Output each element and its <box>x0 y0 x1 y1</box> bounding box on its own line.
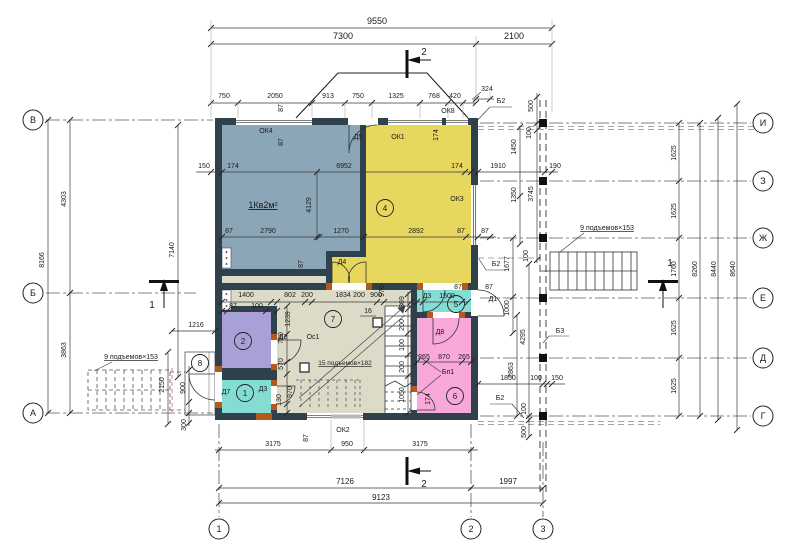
drawing-label: 200 <box>399 319 406 331</box>
drawing-label: 174 <box>425 393 432 405</box>
drawing-label: 1000 <box>504 300 511 316</box>
drawing-label: 6952 <box>336 163 352 170</box>
axis-bubble-Е: Е <box>753 288 773 308</box>
drawing-label: 420 <box>449 93 461 100</box>
drawing-label: 8 <box>198 359 203 368</box>
drawing-label: 4303 <box>61 191 68 207</box>
drawing-label: 1625 <box>671 203 678 219</box>
drawing-label: 87 <box>457 228 465 235</box>
drawing-label: 1050 <box>399 387 406 403</box>
drawing-label: Д3 <box>423 293 432 300</box>
drawing-label: 3 <box>540 524 545 534</box>
drawing-label: 2150 <box>159 377 166 393</box>
drawing-label: ОК2 <box>336 427 350 434</box>
drawing-label: 3175 <box>412 441 428 448</box>
drawing-label: 150 <box>551 375 563 382</box>
drawing-label: 265 <box>418 354 430 361</box>
drawing-label: 7 <box>331 315 336 324</box>
drawing-label: 1450 <box>511 139 518 155</box>
drawing-label: 100 <box>521 403 528 415</box>
axis-bubble-Д: Д <box>753 348 773 368</box>
drawing-label: 2892 <box>408 228 424 235</box>
drawing-label: 150 <box>198 163 210 170</box>
drawing-label: 1Кв2м² <box>248 200 277 210</box>
drawing-label: 100 <box>399 339 406 351</box>
stairs-exterior-right <box>541 252 637 290</box>
drawing-label: Д1 <box>489 296 498 303</box>
drawing-label: 4295 <box>520 329 527 345</box>
drawing-label: Б2 <box>492 261 501 268</box>
drawing-label: 1239 <box>285 311 292 327</box>
drawing-label: 9550 <box>367 16 387 26</box>
drawing-label: 500 <box>528 100 535 112</box>
drawing-label: Б <box>30 288 36 298</box>
axis-bubble-1: 1 <box>209 519 229 539</box>
drawing-label: ОК3 <box>450 196 464 203</box>
drawing-label: Бп1 <box>442 369 454 376</box>
drawing-label: 1325 <box>388 93 404 100</box>
drawing-label: 768 <box>428 93 440 100</box>
drawing-label: Д2 <box>279 334 288 341</box>
drawing-label: 130 <box>276 394 283 406</box>
drawing-label: Б3 <box>556 328 565 335</box>
drawing-label: 324 <box>481 86 493 93</box>
floor-plan-canvas: 9550730021007502050913750132576842032422… <box>0 0 800 556</box>
drawing-label: 1760 <box>671 261 678 277</box>
drawing-label: 2790 <box>260 228 276 235</box>
drawing-label: 870 <box>438 354 450 361</box>
drawing-label: 913 <box>322 93 334 100</box>
drawing-label: Д8 <box>436 329 445 336</box>
drawing-label: 750 <box>352 93 364 100</box>
axis-bubble-Б: Б <box>23 283 43 303</box>
drawing-label: 1625 <box>671 320 678 336</box>
drawing-label: 87 <box>229 303 237 310</box>
drawing-label: Д5 <box>354 134 363 141</box>
drawing-label: 87 <box>481 228 489 235</box>
drawing-label: 15 подъемов×182 <box>318 360 372 367</box>
drawing-label: 100 <box>530 375 542 382</box>
drawing-label: 8260 <box>692 261 699 277</box>
drawing-label: 7126 <box>336 477 354 486</box>
drawing-label: 1400 <box>238 292 254 299</box>
axis-bubble-И: И <box>753 113 773 133</box>
drawing-label: 369 <box>399 296 406 308</box>
axis-bubble-Ж: Ж <box>753 228 773 248</box>
drawing-label: ОК1 <box>391 134 405 141</box>
drawing-label: 87 <box>298 260 305 268</box>
drawing-label: 2 <box>421 479 427 490</box>
drawing-label: Е <box>760 293 766 303</box>
drawing-label: Б2 <box>497 98 506 105</box>
drawing-label: 100 <box>526 127 533 139</box>
drawing-label: 4 <box>383 204 388 213</box>
drawing-label: 2 <box>241 337 246 346</box>
drawing-label: 7140 <box>169 242 176 258</box>
drawing-label: 4129 <box>306 197 313 213</box>
drawing-label: 265 <box>458 354 470 361</box>
drawing-label: 200 <box>399 361 406 373</box>
drawing-label: 1270 <box>333 228 349 235</box>
axis-bubble-Г: Г <box>753 406 773 426</box>
drawing-label: 100 <box>523 250 530 262</box>
drawing-label: 9 подъемов×153 <box>580 225 634 232</box>
drawing-label: Д7 <box>222 389 231 396</box>
drawing-label: 3863 <box>61 342 68 358</box>
drawing-label: Ж <box>759 233 768 243</box>
room-area-living-blue <box>222 125 360 269</box>
window-sill <box>331 415 361 419</box>
drawing-label: З <box>760 176 765 186</box>
drawing-label: Ос1 <box>307 334 320 341</box>
axis-bubble-2: 2 <box>461 519 481 539</box>
drawing-label: 1625 <box>671 145 678 161</box>
drawing-label: 1910 <box>490 163 506 170</box>
drawing-label: 87 <box>278 104 285 112</box>
drawing-label: 87 <box>225 228 233 235</box>
drawing-label: 87 <box>303 434 310 442</box>
drawing-label: 87 <box>278 138 285 146</box>
drawing-label: Б2 <box>496 395 505 402</box>
drawing-label: Г <box>761 411 766 421</box>
axis-bubble-В: В <box>23 110 43 130</box>
drawing-label: 750 <box>218 93 230 100</box>
drawing-label: 190 <box>549 163 561 170</box>
axis-bubble-3: 3 <box>533 519 553 539</box>
drawing-label: 1216 <box>188 322 204 329</box>
drawing-label: ОК4 <box>259 128 273 135</box>
drawing-label: 8166 <box>39 252 46 268</box>
drawing-label: 100 <box>251 303 263 310</box>
room-area-2-purple <box>222 312 271 368</box>
drawing-label: 970 <box>287 386 294 398</box>
drawing-label: 500 <box>521 426 528 438</box>
drawing-label: 1677 <box>504 256 511 272</box>
stairs-exterior-left <box>88 370 185 410</box>
drawing-label: 8640 <box>730 261 737 277</box>
drawing-label: 1834 <box>335 292 351 299</box>
drawing-label: 802 <box>284 292 296 299</box>
drawing-label: А <box>30 408 36 418</box>
drawing-label: 3745 <box>528 186 535 202</box>
drawing-label: 200 <box>301 292 313 299</box>
drawing-label: 2050 <box>267 93 283 100</box>
drawing-label: 2 <box>468 524 473 534</box>
drawing-label: 300 <box>181 419 188 431</box>
drawing-label: 174 <box>451 163 463 170</box>
drawing-label: 1997 <box>499 477 517 486</box>
drawing-label: 3175 <box>265 441 281 448</box>
drawing-label: 1625 <box>671 378 678 394</box>
drawing-label: 900 <box>180 382 187 394</box>
drawing-label: 8440 <box>711 261 718 277</box>
axis-bubble-З: З <box>753 171 773 191</box>
drawing-label: 570 <box>278 358 285 370</box>
drawing-label: 2100 <box>504 31 524 41</box>
drawing-label: 5 <box>454 300 459 309</box>
drawing-label: 174 <box>227 163 239 170</box>
axis-bubble-А: А <box>23 403 43 423</box>
room-area-beige-strip <box>222 276 326 283</box>
drawing-label: 6 <box>453 392 458 401</box>
drawing-label: 1850 <box>500 375 516 382</box>
drawing-label: 7300 <box>333 31 353 41</box>
drawing-label: 16 <box>364 308 372 315</box>
drawing-label: ОК8 <box>441 108 455 115</box>
drawing-label: Д4 <box>338 259 347 266</box>
drawing-label: Д3 <box>259 386 268 393</box>
drawing-label: Д <box>760 353 766 363</box>
drawing-label: 200 <box>353 292 365 299</box>
drawing-label: 1 <box>243 389 248 398</box>
drawing-label: 87 <box>485 284 493 291</box>
drawing-label: 9 подъемов×153 <box>104 354 158 361</box>
drawing-label: 970 <box>379 285 386 297</box>
pier-column-line <box>539 100 547 492</box>
drawing-label: 1 <box>149 300 155 311</box>
stair-shaft <box>385 306 411 413</box>
drawing-label: 9123 <box>372 493 390 502</box>
drawing-label: В <box>30 115 36 125</box>
drawing-label: 2 <box>421 47 427 58</box>
drawing-label: И <box>760 118 766 128</box>
drawing-label: 1350 <box>511 187 518 203</box>
drawing-label: 174 <box>433 129 440 141</box>
drawing-label: 1 <box>216 524 221 534</box>
floor-plan-page: 9550730021007502050913750132576842032422… <box>0 0 800 556</box>
drawing-label: 950 <box>341 441 353 448</box>
drawing-label: 87 <box>454 284 462 291</box>
